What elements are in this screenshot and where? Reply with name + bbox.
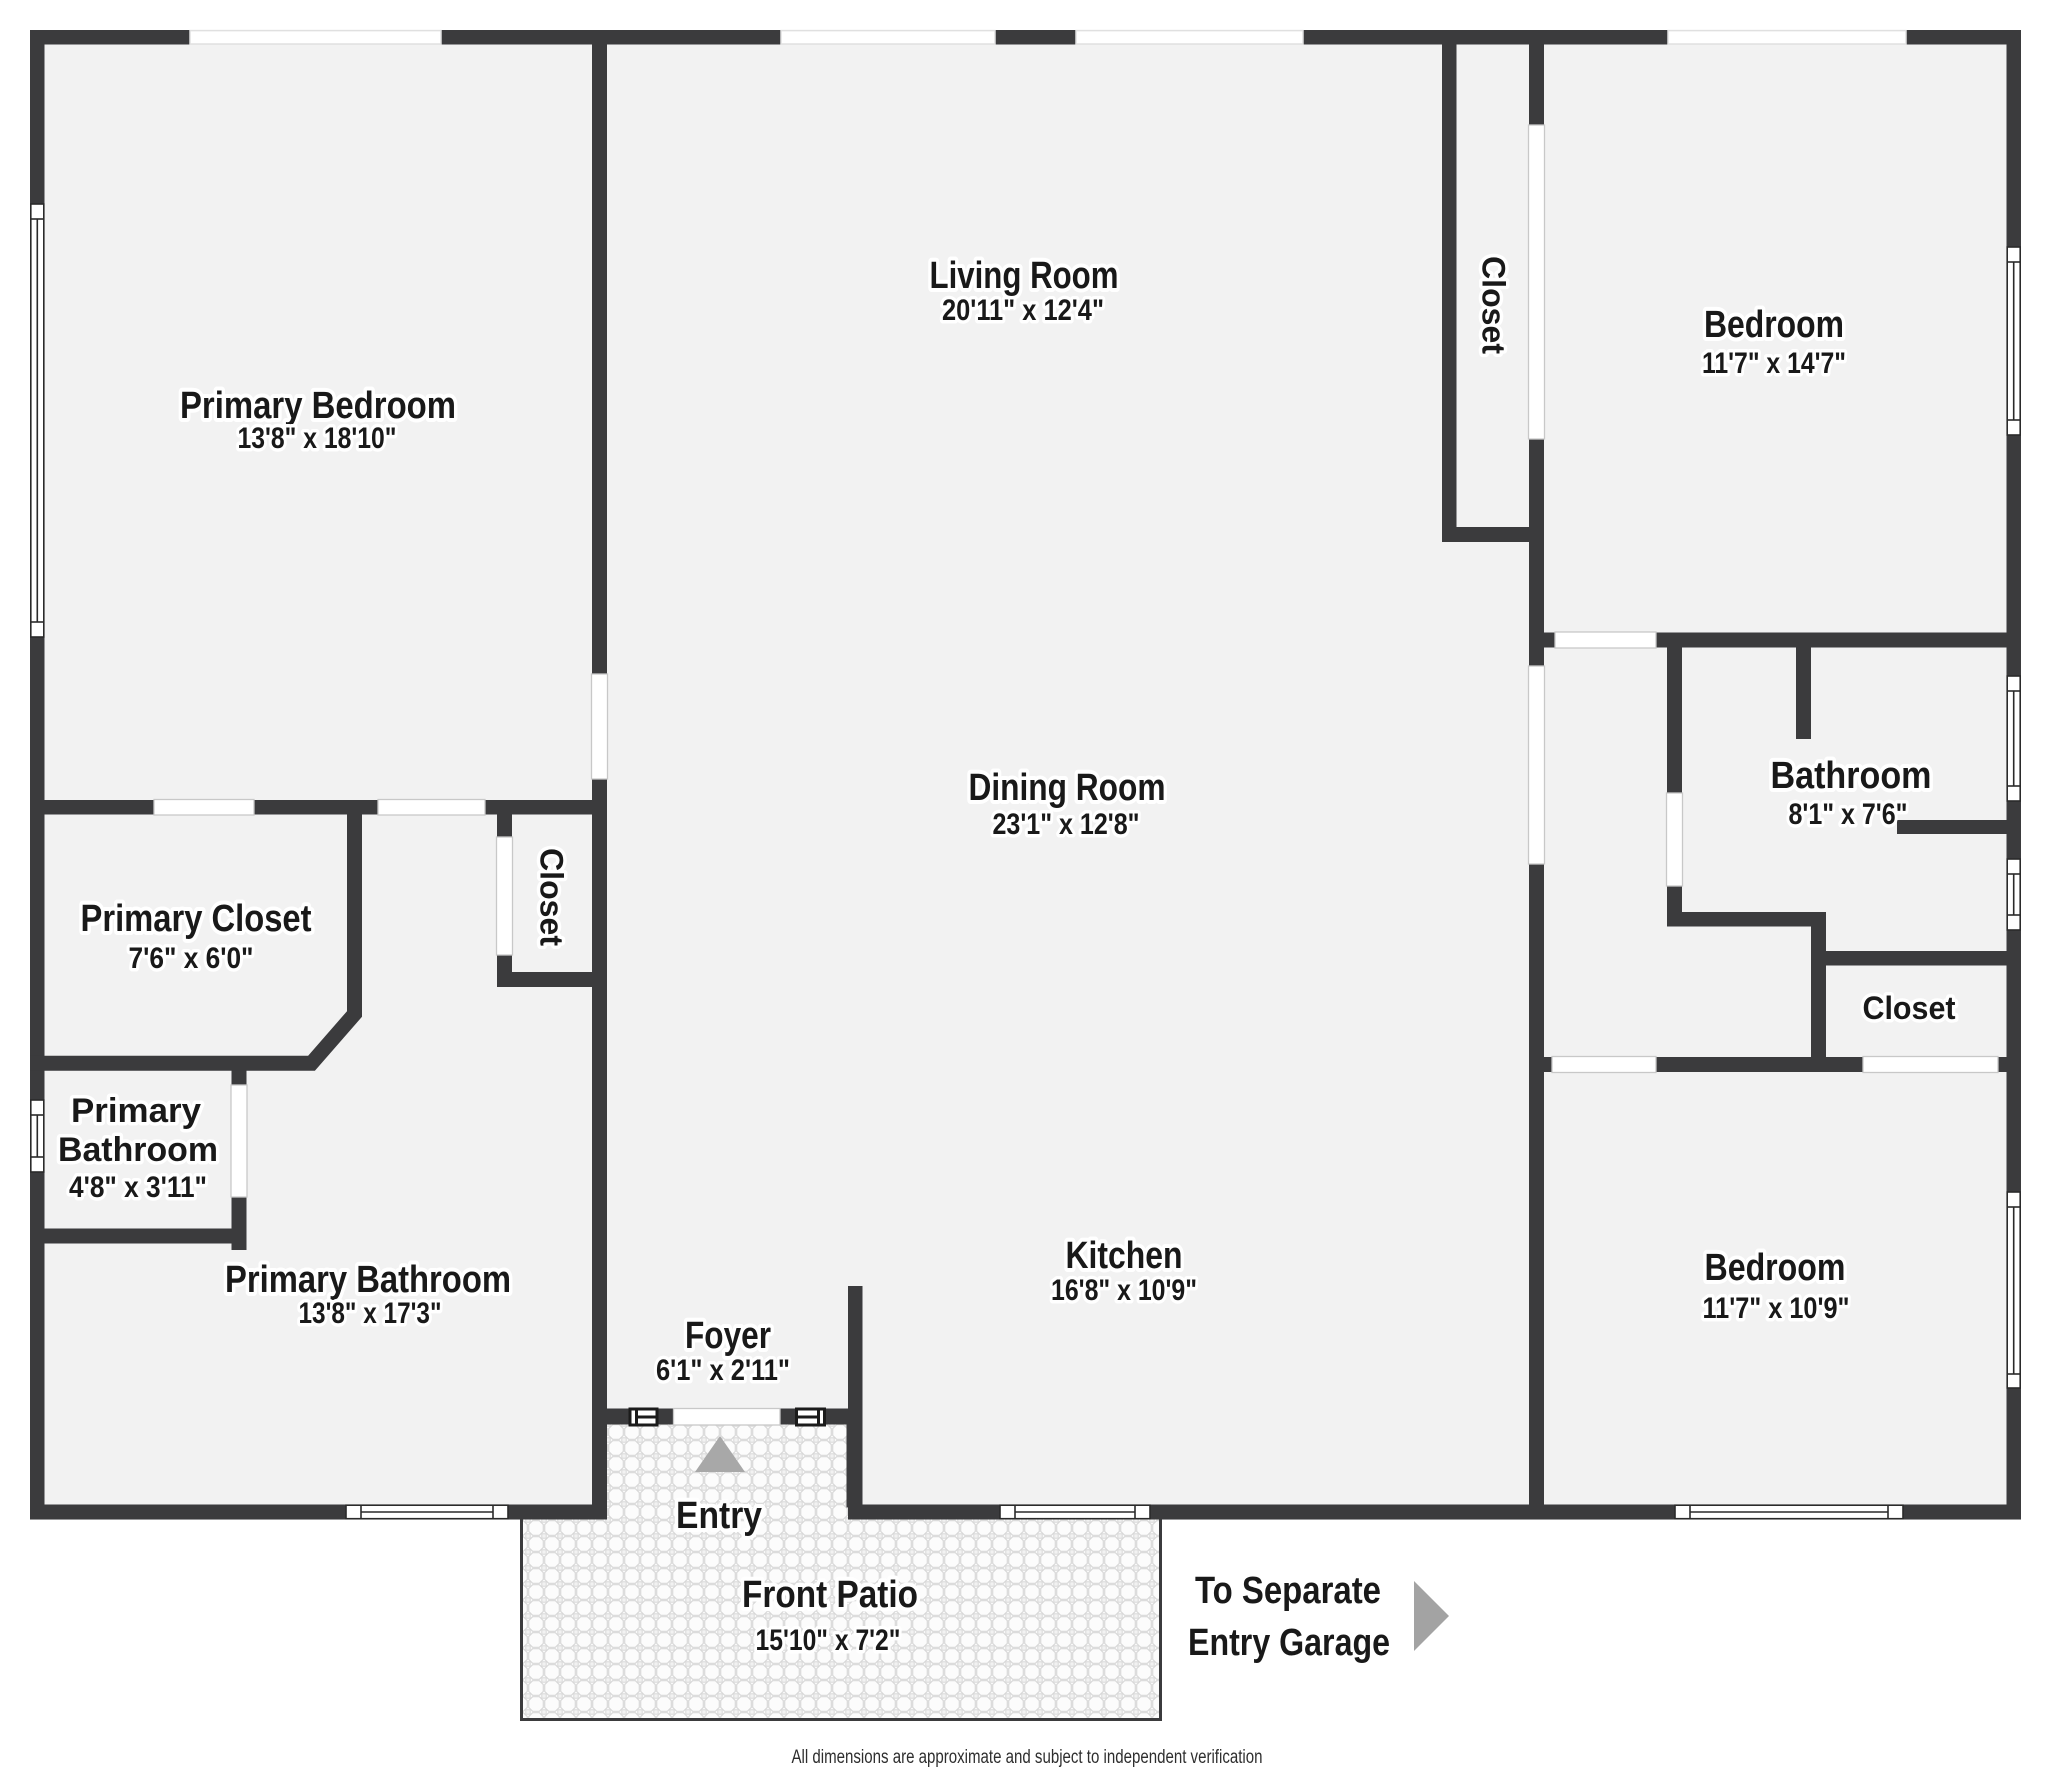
svg-text:13'8" x 17'3": 13'8" x 17'3" — [299, 1297, 442, 1330]
svg-text:Closet: Closet — [534, 848, 570, 946]
svg-text:Kitchen: Kitchen — [1066, 1235, 1183, 1277]
svg-text:23'1" x 12'8": 23'1" x 12'8" — [993, 808, 1140, 841]
svg-text:Closet: Closet — [1476, 256, 1512, 354]
svg-text:6'1" x 2'11": 6'1" x 2'11" — [656, 1354, 790, 1387]
svg-text:Primary Bedroom: Primary Bedroom — [180, 385, 456, 427]
svg-text:Bedroom: Bedroom — [1705, 1247, 1846, 1289]
svg-text:All dimensions are approximate: All dimensions are approximate and subje… — [792, 1747, 1263, 1768]
svg-text:Bathroom: Bathroom — [1771, 755, 1932, 797]
svg-text:Entry Garage: Entry Garage — [1188, 1622, 1390, 1664]
svg-text:Primary Bathroom: Primary Bathroom — [225, 1259, 511, 1301]
svg-text:Front Patio: Front Patio — [742, 1574, 918, 1616]
svg-text:Living Room: Living Room — [930, 255, 1119, 297]
svg-text:7'6" x 6'0": 7'6" x 6'0" — [129, 942, 254, 975]
svg-text:Closet: Closet — [1863, 990, 1956, 1026]
svg-text:Bathroom: Bathroom — [58, 1131, 218, 1169]
svg-text:Primary Closet: Primary Closet — [81, 898, 312, 940]
svg-text:Bedroom: Bedroom — [1704, 304, 1844, 346]
svg-text:8'1" x 7'6": 8'1" x 7'6" — [1789, 798, 1908, 831]
svg-text:15'10" x 7'2": 15'10" x 7'2" — [756, 1624, 901, 1657]
svg-text:Dining Room: Dining Room — [969, 767, 1166, 809]
svg-text:11'7" x 14'7": 11'7" x 14'7" — [1702, 347, 1846, 380]
svg-text:16'8" x 10'9": 16'8" x 10'9" — [1051, 1274, 1197, 1307]
svg-text:Foyer: Foyer — [685, 1315, 771, 1357]
svg-text:4'8" x 3'11": 4'8" x 3'11" — [69, 1171, 207, 1204]
svg-text:11'7" x 10'9": 11'7" x 10'9" — [1703, 1292, 1850, 1325]
svg-text:13'8" x 18'10": 13'8" x 18'10" — [238, 422, 397, 455]
svg-text:Primary: Primary — [71, 1092, 201, 1130]
svg-text:20'11" x 12'4": 20'11" x 12'4" — [942, 294, 1104, 327]
svg-text:Entry: Entry — [676, 1495, 762, 1537]
svg-text:To Separate: To Separate — [1195, 1570, 1381, 1612]
